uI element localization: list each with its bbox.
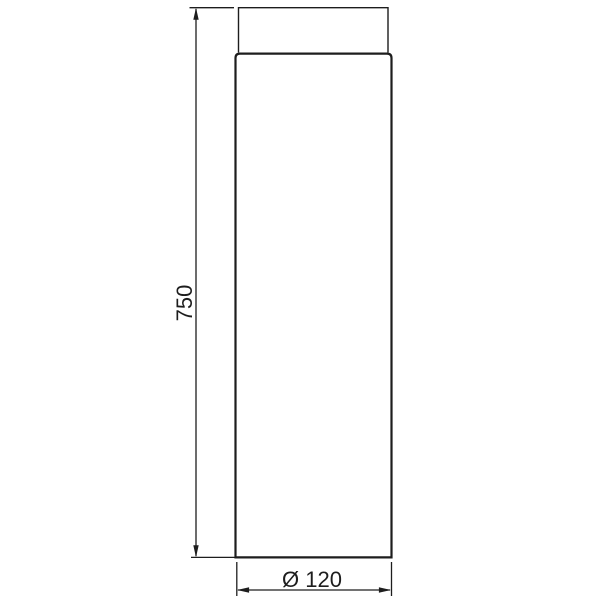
technical-drawing-canvas: 750 Ø 120 xyxy=(0,0,600,600)
arrow-up-icon xyxy=(193,8,198,20)
diameter-dimension-label: Ø 120 xyxy=(282,567,342,592)
height-dimension-label: 750 xyxy=(172,285,197,322)
arrow-down-icon xyxy=(193,545,198,557)
pipe-collar xyxy=(239,8,389,53)
arrow-left-icon xyxy=(237,587,249,592)
pipe-body xyxy=(236,54,392,558)
arrow-right-icon xyxy=(379,587,391,592)
pipe-part xyxy=(236,8,392,558)
diameter-dimension: Ø 120 xyxy=(237,562,392,596)
height-dimension: 750 xyxy=(172,8,236,558)
pipe-drawing: 750 Ø 120 xyxy=(0,0,600,600)
